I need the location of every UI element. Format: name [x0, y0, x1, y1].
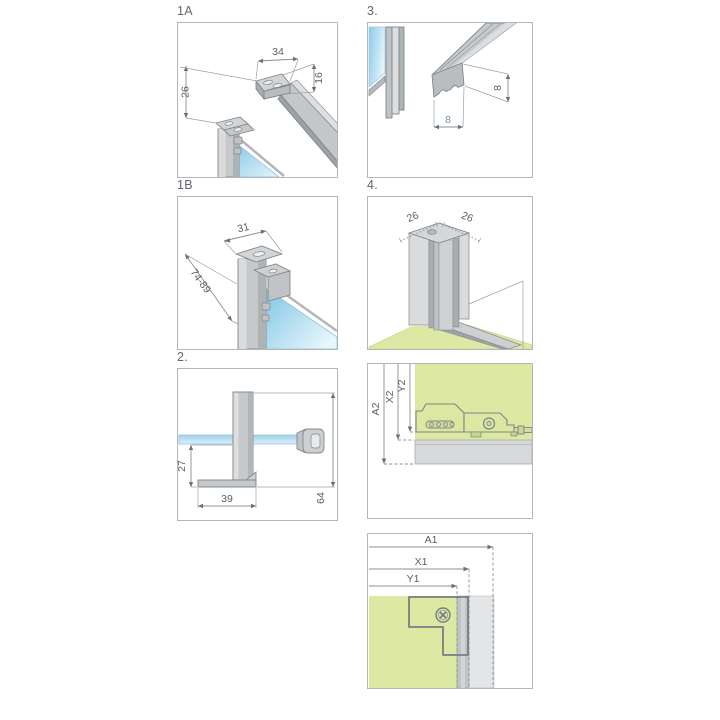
installation-diagram: 1A 3. 1B 4. 2. [0, 0, 720, 720]
panel-1b-wall-profile: 31 74-89 [177, 196, 338, 350]
screw-head-icon [444, 423, 448, 427]
panel-1a-drawing: 34 16 26 [178, 23, 337, 177]
glass-with-wall-profile [369, 27, 404, 118]
panel-label-1b: 1B [177, 178, 193, 192]
panel-5-top-view-bar: A2 X2 Y2 [367, 363, 533, 519]
bar-connector [518, 426, 524, 434]
panel-2-support-bracket: 27 39 64 [177, 368, 338, 521]
corner-profile [409, 223, 469, 330]
dim-label-39: 39 [221, 493, 233, 505]
wall-top-view [369, 596, 494, 688]
dim-label-a1: A1 [425, 534, 438, 546]
dim-label-x1: X1 [415, 556, 428, 568]
dim-label-74-89: 74-89 [188, 267, 214, 296]
panel-6-drawing: A1 X1 Y1 [368, 534, 532, 688]
dim-label-16: 16 [313, 72, 325, 84]
glass-band [469, 596, 494, 688]
screw-head-icon [437, 423, 441, 427]
clamp-foot [471, 432, 481, 437]
panel-3-seal-profile: 8 8 [367, 22, 533, 178]
wall-profile-assembly [216, 117, 284, 177]
bracket-foot [198, 480, 256, 487]
dim-label-27: 27 [178, 460, 188, 472]
dimension-26: 26 [180, 66, 258, 123]
dimension-31: 31 [224, 221, 282, 253]
panel-1b-drawing: 31 74-89 [178, 197, 337, 349]
screw-head-icon [450, 423, 454, 427]
dimension-a2: A2 [370, 364, 414, 464]
dim-label-y2: Y2 [396, 379, 408, 392]
dim-label-8-width: 8 [445, 114, 451, 126]
bar-end-cap [297, 429, 324, 453]
dim-label-y1: Y1 [407, 573, 420, 585]
panel-label-1a: 1A [177, 4, 193, 18]
dimension-74-89: 74-89 [185, 254, 238, 324]
panel-label-3: 3. [367, 4, 378, 18]
glass-edge-band [415, 440, 532, 464]
panel-label-2: 2. [177, 350, 188, 364]
panel-4-corner-profile: 26 26 [367, 196, 533, 350]
screw-head-icon [430, 423, 434, 427]
dimension-39: 39 [198, 488, 256, 508]
dim-label-34: 34 [272, 46, 284, 58]
dim-label-26: 26 [180, 86, 192, 98]
panel-1a-wall-bracket: 34 16 26 [177, 22, 338, 178]
dim-label-26-right: 26 [459, 209, 475, 225]
panel-5-drawing: A2 X2 Y2 [368, 364, 532, 518]
dim-label-31: 31 [236, 221, 250, 235]
dim-label-8-height: 8 [492, 85, 504, 91]
dim-label-26-left: 26 [405, 209, 421, 225]
screw-hole [428, 230, 437, 235]
dimension-8-height: 8 [463, 64, 510, 102]
panel-label-4: 4. [367, 178, 378, 192]
wall-edge-line [469, 281, 523, 304]
panel-4-drawing: 26 26 [368, 197, 532, 349]
dim-label-x2: X2 [384, 390, 396, 403]
panel-2-drawing: 27 39 64 [178, 369, 337, 520]
clamp-tab [234, 148, 241, 154]
dimension-y2: Y2 [396, 364, 415, 432]
clamp-foot [511, 432, 517, 436]
clamp-tab [234, 137, 242, 144]
dim-label-64: 64 [315, 492, 327, 504]
panel-3-drawing: 8 8 [368, 23, 532, 177]
panel-6-top-view-profile: A1 X1 Y1 [367, 533, 533, 689]
clamp-tab [262, 303, 270, 310]
dim-label-a2: A2 [370, 402, 382, 415]
clamp-tab [262, 315, 269, 321]
